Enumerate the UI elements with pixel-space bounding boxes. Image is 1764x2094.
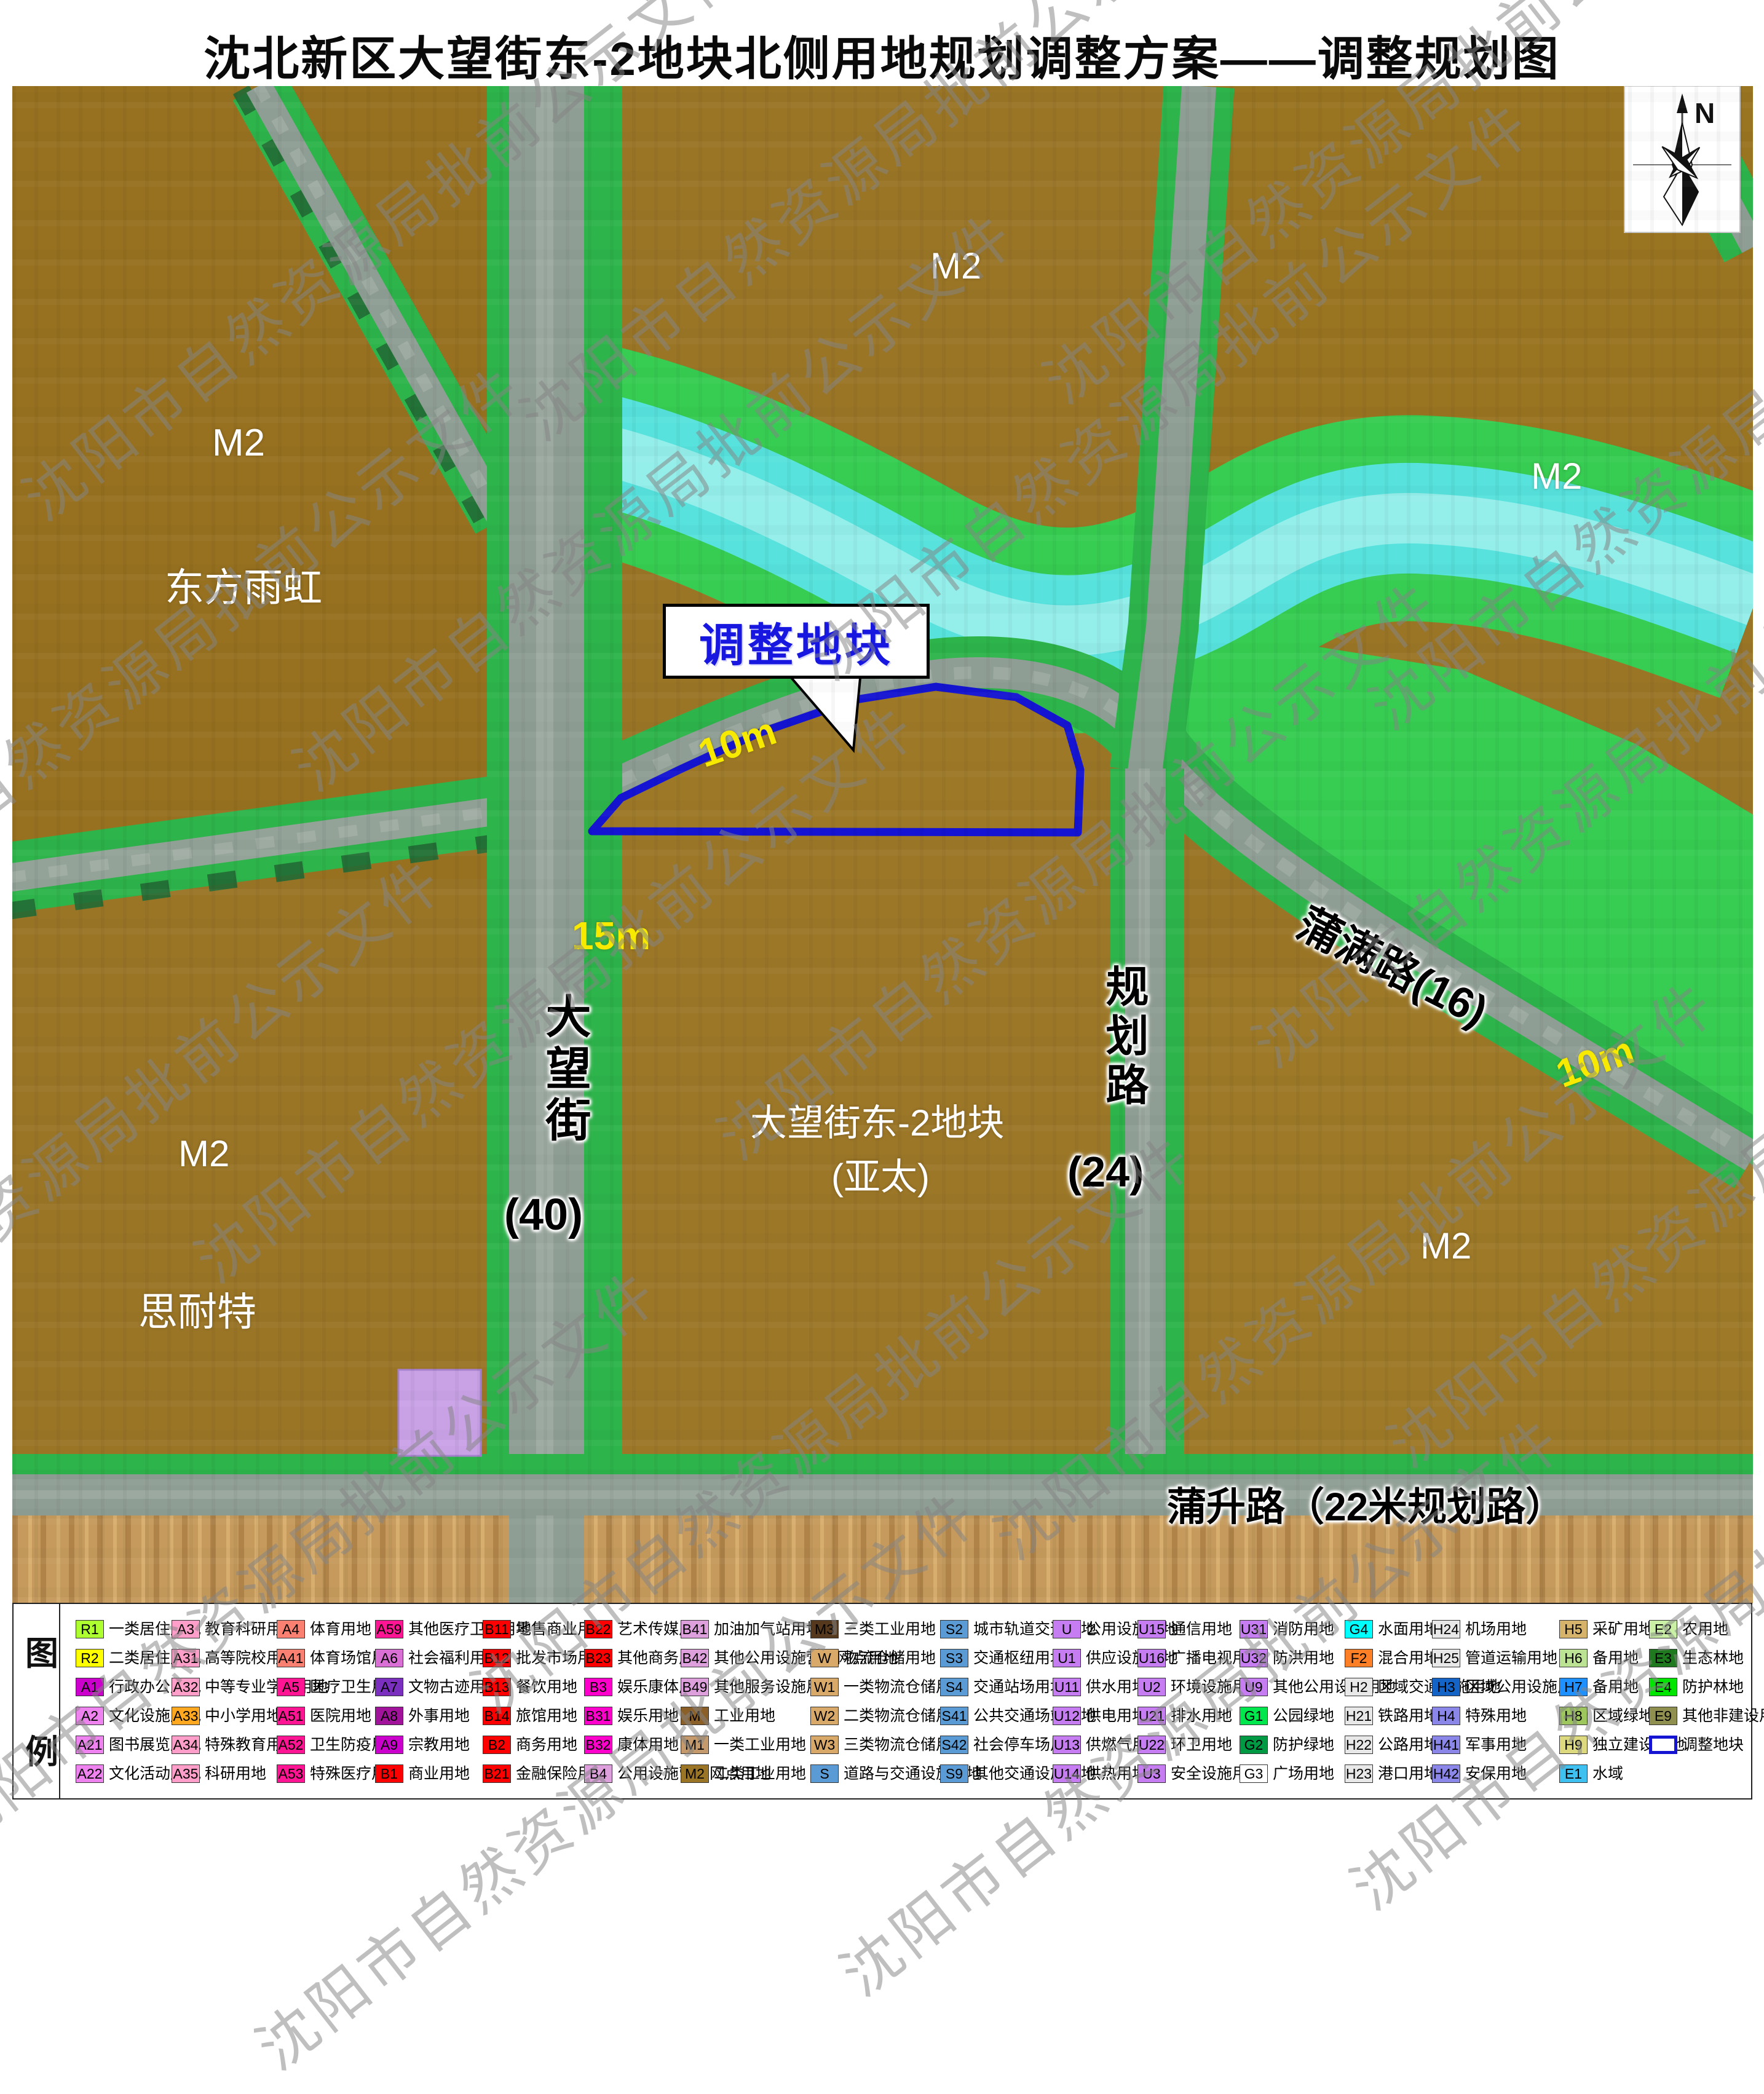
- legend-item-label: 军事用地: [1465, 1736, 1527, 1754]
- legend-swatch: B32: [584, 1736, 612, 1754]
- legend-swatch: S: [810, 1764, 839, 1783]
- legend-item-label: 娱乐用地: [617, 1707, 679, 1725]
- legend-swatch: A51: [277, 1707, 305, 1725]
- planning-map: N M2M2M2M2M2东方雨虹思耐特大望街东-2地块(亚太) 大望街(40)规…: [12, 86, 1753, 1603]
- legend-swatch: E1: [1559, 1764, 1588, 1783]
- farmland-band: [12, 1515, 1753, 1603]
- legend-item-label: 农用地: [1682, 1620, 1728, 1638]
- legend-swatch: H8: [1559, 1707, 1588, 1725]
- legend-item-label: 混合用地: [1378, 1649, 1439, 1667]
- legend-swatch: U31: [1240, 1620, 1268, 1638]
- legend-swatch: U32: [1240, 1649, 1268, 1667]
- utility-parcel: [398, 1370, 481, 1456]
- legend-swatch: G4: [1345, 1620, 1373, 1638]
- legend-item-label: 通信用地: [1171, 1620, 1232, 1638]
- legend-swatch: A21: [76, 1736, 104, 1754]
- legend-swatch: U9: [1240, 1678, 1268, 1696]
- legend-item-label: 商业用地: [408, 1764, 470, 1783]
- legend-swatch: G2: [1240, 1736, 1268, 1754]
- legend-item-label: 水域: [1592, 1764, 1623, 1783]
- legend-swatch: B13: [483, 1678, 511, 1696]
- legend-swatch: H3: [1432, 1678, 1460, 1696]
- legend-swatch: E2: [1649, 1620, 1677, 1638]
- north-arrow: N: [1624, 86, 1740, 232]
- legend-item-label: 旅馆用地: [516, 1707, 577, 1725]
- legend-swatch: B14: [483, 1707, 511, 1725]
- callout-text: 调整地块: [699, 609, 893, 674]
- legend-item-label: 安保用地: [1465, 1764, 1527, 1783]
- legend-item-label: 排水用地: [1171, 1707, 1232, 1725]
- legend-swatch: A3: [172, 1620, 200, 1638]
- legend-item-label: 体育用地: [310, 1620, 371, 1638]
- legend-item-label: 三类工业用地: [844, 1620, 936, 1638]
- legend-swatch: H24: [1432, 1620, 1460, 1638]
- legend-swatch: B4: [584, 1764, 612, 1783]
- legend-swatch: A34: [172, 1736, 200, 1754]
- legend-item-label: 港口用地: [1378, 1764, 1439, 1783]
- legend-title-char: 例: [25, 1725, 59, 1773]
- legend-swatch: S41: [940, 1707, 968, 1725]
- legend-swatch: A2: [76, 1707, 104, 1725]
- road-dawang-greenbelt-east: [584, 86, 622, 1474]
- legend-swatch: G1: [1240, 1707, 1268, 1725]
- legend-swatch: H25: [1432, 1649, 1460, 1667]
- legend-swatch: B12: [483, 1649, 511, 1667]
- legend-swatch: U3: [1137, 1764, 1166, 1783]
- legend-swatch: H41: [1432, 1736, 1460, 1754]
- legend-item-label: 科研用地: [205, 1764, 266, 1783]
- legend-swatch: H7: [1559, 1678, 1588, 1696]
- legend-swatch: M: [681, 1707, 709, 1725]
- legend-swatch: W3: [810, 1736, 839, 1754]
- legend-swatch: E4: [1649, 1678, 1677, 1696]
- legend-item-label: 其他公用设施用地: [1273, 1678, 1396, 1696]
- legend-swatch: B31: [584, 1707, 612, 1725]
- legend-item-label: 康体用地: [617, 1736, 679, 1754]
- legend-swatch: [1649, 1736, 1677, 1754]
- road-dawang-greenbelt-west: [487, 86, 509, 1474]
- legend-swatch: H4: [1432, 1707, 1460, 1725]
- legend-swatch: B3: [584, 1678, 612, 1696]
- legend-swatch: R1: [76, 1620, 104, 1638]
- legend-item-label: 管道运输用地: [1465, 1649, 1557, 1667]
- legend-item-label: 公路用地: [1378, 1736, 1439, 1754]
- legend-swatch: A32: [172, 1678, 200, 1696]
- legend-swatch: M2: [681, 1764, 709, 1783]
- legend-item-label: 机场用地: [1465, 1620, 1527, 1638]
- legend-swatch: U: [1053, 1620, 1081, 1638]
- legend-swatch: A4: [277, 1620, 305, 1638]
- legend-swatch: A31: [172, 1649, 200, 1667]
- legend-swatch: E3: [1649, 1649, 1677, 1667]
- legend-swatch: A59: [375, 1620, 403, 1638]
- legend-swatch: S9: [940, 1764, 968, 1783]
- legend-swatch: B21: [483, 1764, 511, 1783]
- legend-item-label: 区域绿地: [1592, 1707, 1654, 1725]
- legend-swatch: H5: [1559, 1620, 1588, 1638]
- legend-swatch: B2: [483, 1736, 511, 1754]
- legend-item-label: 交通站场用地: [973, 1678, 1066, 1696]
- legend-title-char: 图: [25, 1626, 59, 1675]
- legend-swatch: W: [810, 1649, 839, 1667]
- legend-swatch: U22: [1137, 1736, 1166, 1754]
- legend-item-label: 餐饮用地: [516, 1678, 577, 1696]
- legend-item-label: 二类工业用地: [714, 1764, 806, 1783]
- legend-swatch: B11: [483, 1620, 511, 1638]
- legend-swatch: A1: [76, 1678, 104, 1696]
- legend-item-label: 特殊用地: [1465, 1707, 1527, 1725]
- adjusted-plot-callout: 调整地块: [663, 604, 930, 679]
- legend-item-label: 防护绿地: [1273, 1736, 1334, 1754]
- road-guihua-greenbelt-west: [1110, 768, 1125, 1474]
- legend-item-label: 消防用地: [1273, 1620, 1334, 1638]
- legend-item-label: 广场用地: [1273, 1764, 1334, 1783]
- legend-swatch: A22: [76, 1764, 104, 1783]
- legend-swatch: W2: [810, 1707, 839, 1725]
- legend-swatch: H9: [1559, 1736, 1588, 1754]
- legend-item-label: 水面用地: [1378, 1620, 1439, 1638]
- legend-swatch: U12: [1053, 1707, 1081, 1725]
- legend-swatch: M3: [810, 1620, 839, 1638]
- legend-item-label: 其他医疗卫生用地: [408, 1620, 531, 1638]
- legend-item-label: 医院用地: [310, 1707, 371, 1725]
- legend-item-label: 铁路用地: [1378, 1707, 1439, 1725]
- planning-notice-page: { "title": "沈北新区大望街东-2地块北侧用地规划调整方案——调整规划…: [0, 0, 1764, 1811]
- legend-item-label: 商务用地: [516, 1736, 577, 1754]
- legend-swatch: B1: [375, 1764, 403, 1783]
- page-title: 沈北新区大望街东-2地块北侧用地规划调整方案——调整规划图: [0, 21, 1764, 89]
- legend-swatch: A52: [277, 1736, 305, 1754]
- legend-swatch: E9: [1649, 1707, 1677, 1725]
- legend-item-label: 中等专业学校用地: [205, 1678, 328, 1696]
- legend-swatch: A9: [375, 1736, 403, 1754]
- legend-swatch: A6: [375, 1649, 403, 1667]
- legend-item-label: 外事用地: [408, 1707, 470, 1725]
- road-pusheng-greenbelt: [12, 1454, 1753, 1474]
- legend-swatch: B42: [681, 1649, 709, 1667]
- legend-item-label: 调整地块: [1682, 1736, 1744, 1754]
- legend-swatch: S3: [940, 1649, 968, 1667]
- legend-swatch: B22: [584, 1620, 612, 1638]
- legend-item-label: 物流仓储用地: [844, 1649, 936, 1667]
- legend-swatch: H23: [1345, 1764, 1373, 1783]
- legend-swatch: A33: [172, 1707, 200, 1725]
- legend-swatch: M1: [681, 1736, 709, 1754]
- legend-swatch: G3: [1240, 1764, 1268, 1783]
- legend-swatch: H42: [1432, 1764, 1460, 1783]
- legend-item-label: 工业用地: [714, 1707, 775, 1725]
- legend-swatch: U1: [1053, 1649, 1081, 1667]
- legend-item-label: 防洪用地: [1273, 1649, 1334, 1667]
- legend-swatch: U2: [1137, 1678, 1166, 1696]
- legend-item-label: 防护林地: [1682, 1678, 1744, 1696]
- legend-item-label: 一类工业用地: [714, 1736, 806, 1754]
- legend-swatch: A8: [375, 1707, 403, 1725]
- legend-item-label: 采矿用地: [1592, 1620, 1654, 1638]
- legend-swatch: H6: [1559, 1649, 1588, 1667]
- legend-item-label: 公园绿地: [1273, 1707, 1334, 1725]
- road-guihua-greenbelt-east: [1166, 768, 1184, 1474]
- legend-item-label: 宗教用地: [408, 1736, 470, 1754]
- legend-swatch: U13: [1053, 1736, 1081, 1754]
- legend-swatch: H21: [1345, 1707, 1373, 1725]
- legend-swatch: H2: [1345, 1678, 1373, 1696]
- legend-swatch: S4: [940, 1678, 968, 1696]
- legend-swatch: H22: [1345, 1736, 1373, 1754]
- legend-item-label: 其他非建设用地: [1682, 1707, 1764, 1725]
- legend-swatch: A5: [277, 1678, 305, 1696]
- legend-item-label: 中小学用地: [205, 1707, 282, 1725]
- legend-swatch: F2: [1345, 1649, 1373, 1667]
- legend-item-label: 交通枢纽用地: [973, 1649, 1066, 1667]
- legend-swatch: R2: [76, 1649, 104, 1667]
- legend-swatch: U15: [1137, 1620, 1166, 1638]
- legend-swatch: A41: [277, 1649, 305, 1667]
- legend-divider: [59, 1604, 60, 1798]
- legend-item-label: 加油加气站用地: [714, 1620, 821, 1638]
- legend: 图例R1一类居住用地R2二类居住用地A1行政办公用地A2文化设施用地A21图书展…: [12, 1603, 1752, 1800]
- legend-item-label: 备用地: [1592, 1678, 1639, 1696]
- legend-swatch: A53: [277, 1764, 305, 1783]
- legend-swatch: B49: [681, 1678, 709, 1696]
- legend-swatch: B41: [681, 1620, 709, 1638]
- legend-item-label: 生态林地: [1682, 1649, 1744, 1667]
- legend-swatch: A7: [375, 1678, 403, 1696]
- legend-swatch: S42: [940, 1736, 968, 1754]
- map-canvas: N: [12, 86, 1753, 1603]
- legend-swatch: B23: [584, 1649, 612, 1667]
- north-letter: N: [1695, 97, 1715, 129]
- legend-swatch: A35: [172, 1764, 200, 1783]
- legend-swatch: U14: [1053, 1764, 1081, 1783]
- legend-swatch: U16: [1137, 1649, 1166, 1667]
- legend-item-label: 备用地: [1592, 1649, 1639, 1667]
- legend-swatch: W1: [810, 1678, 839, 1696]
- legend-swatch: U21: [1137, 1707, 1166, 1725]
- legend-item-label: 环卫用地: [1171, 1736, 1232, 1754]
- legend-swatch: S2: [940, 1620, 968, 1638]
- legend-swatch: U11: [1053, 1678, 1081, 1696]
